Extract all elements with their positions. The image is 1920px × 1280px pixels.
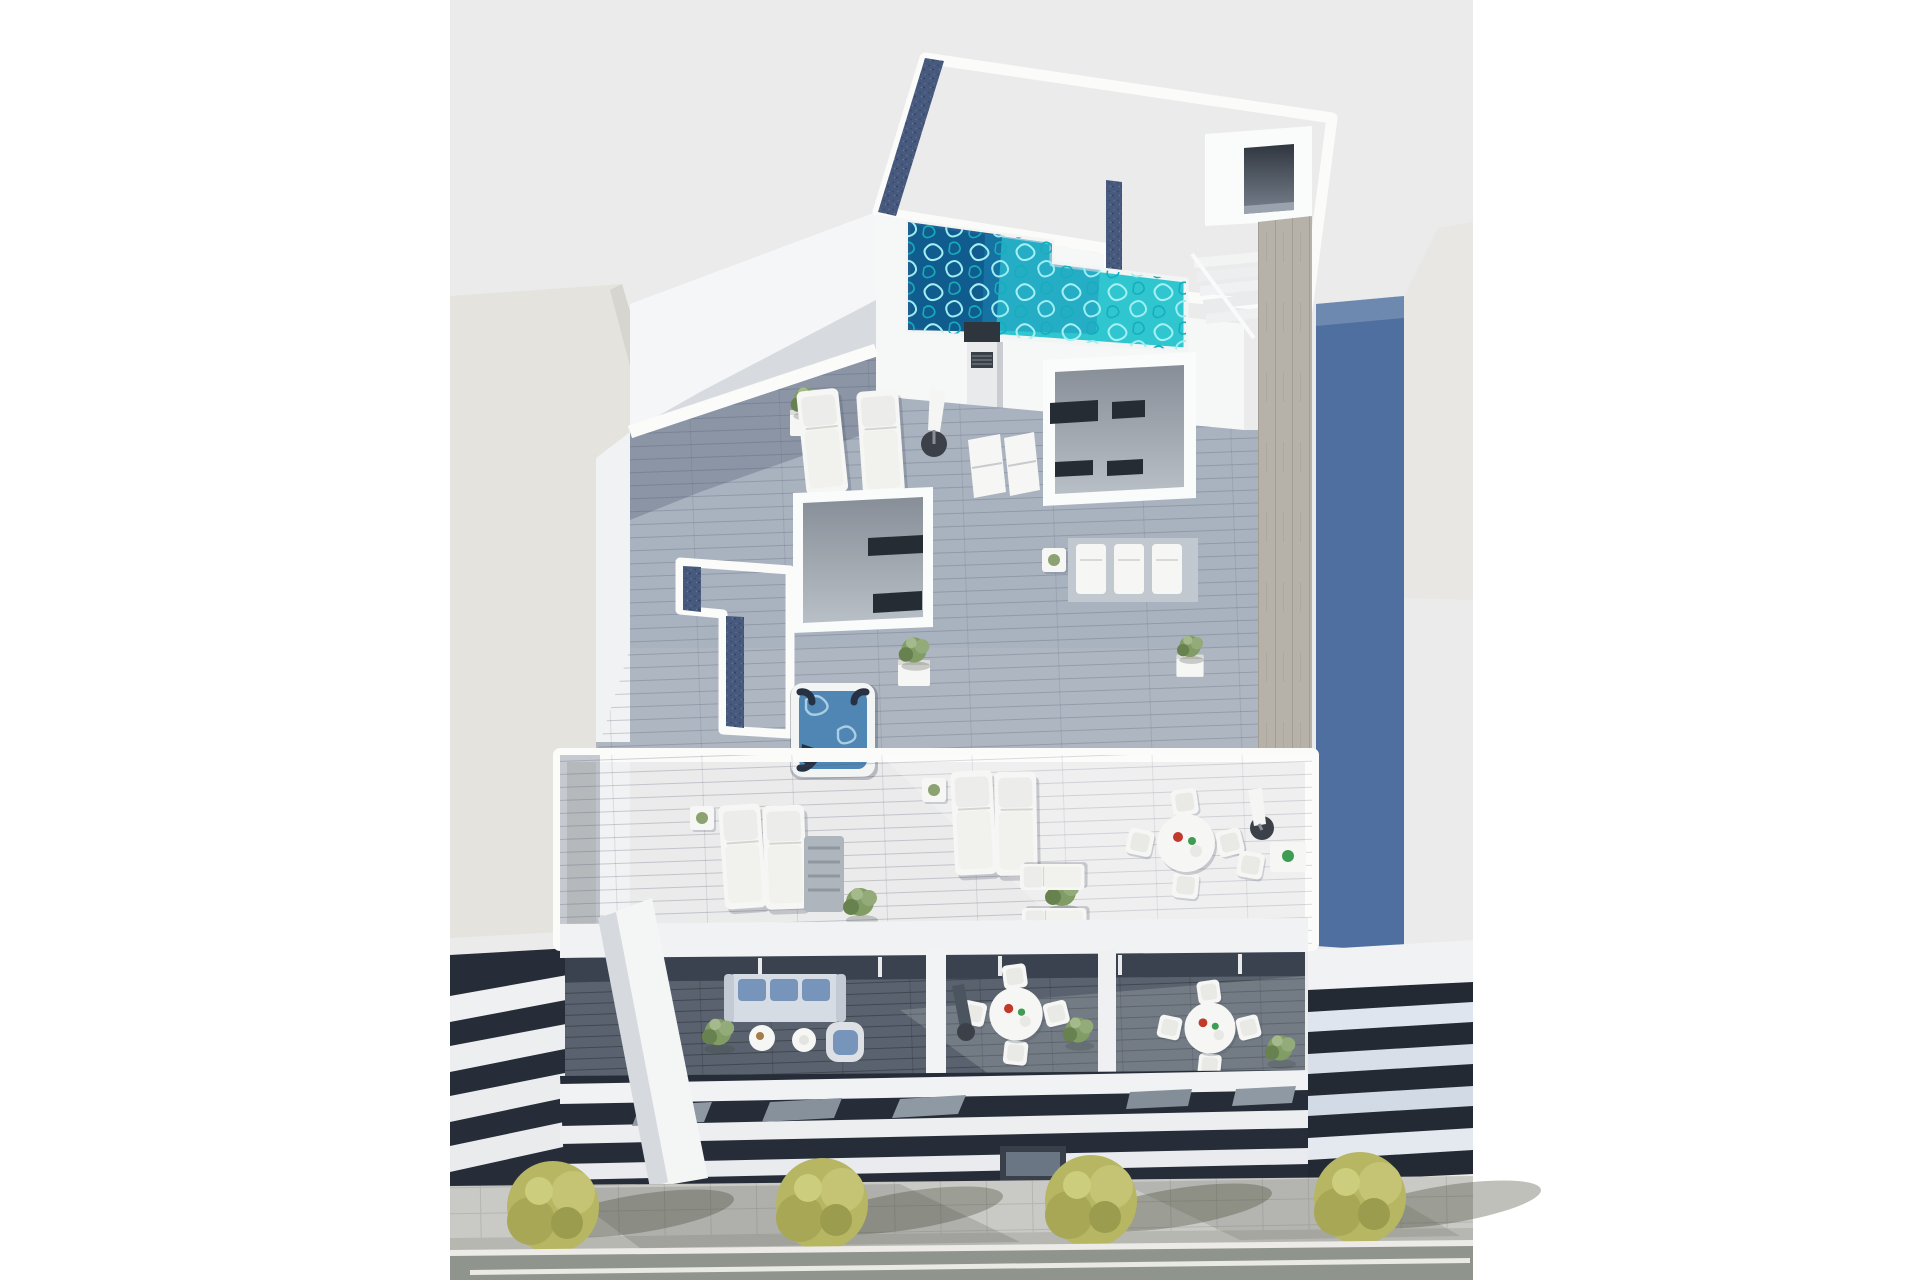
sun-lounger [1020,862,1088,890]
chimney-cap [964,322,1000,342]
lower-roof-shadow-strip [726,616,744,728]
coffee-table-food [756,1032,764,1040]
stacked-loungers [1068,538,1198,602]
skylight-window [868,535,923,556]
entrance-glass [1006,1152,1060,1176]
parapet-shadow [560,755,600,944]
chair [1235,850,1267,882]
side-table [1042,548,1068,574]
lower-roof-shadow-strip [683,566,701,612]
skylight-window [873,591,922,613]
skylight-window [1112,400,1145,419]
sofa-cushions [738,979,830,1001]
sun-lounger [856,389,908,501]
sofa-armrest [724,974,734,1022]
skylight-box-open [793,487,933,633]
right-building-blue-wall [1316,296,1404,952]
sun-lounger [762,804,811,915]
sun-lounger [950,770,1001,881]
skylight-window [1050,400,1098,424]
bistro-table-plant [1282,850,1294,862]
right-building-roof [1404,222,1473,600]
coffee-table-plate [799,1035,809,1045]
skylight-box [1043,352,1196,506]
balcony-partition-wall [1098,950,1116,1074]
aerial-render-svg [0,0,1920,1280]
skylight-window [1055,460,1093,477]
frame-chair [804,836,844,912]
armchair-cushion [833,1030,858,1055]
walkway-planks [1258,216,1312,755]
sofa-armrest [836,974,846,1022]
skylight-window [1107,459,1143,476]
terrace-planter [898,637,930,686]
render-image [0,0,1920,1280]
side-table [690,806,716,832]
balcony-partition-wall [926,950,946,1078]
terrace-planter [1176,636,1203,677]
stair-access-tower [1205,126,1312,226]
side-table [922,778,948,804]
